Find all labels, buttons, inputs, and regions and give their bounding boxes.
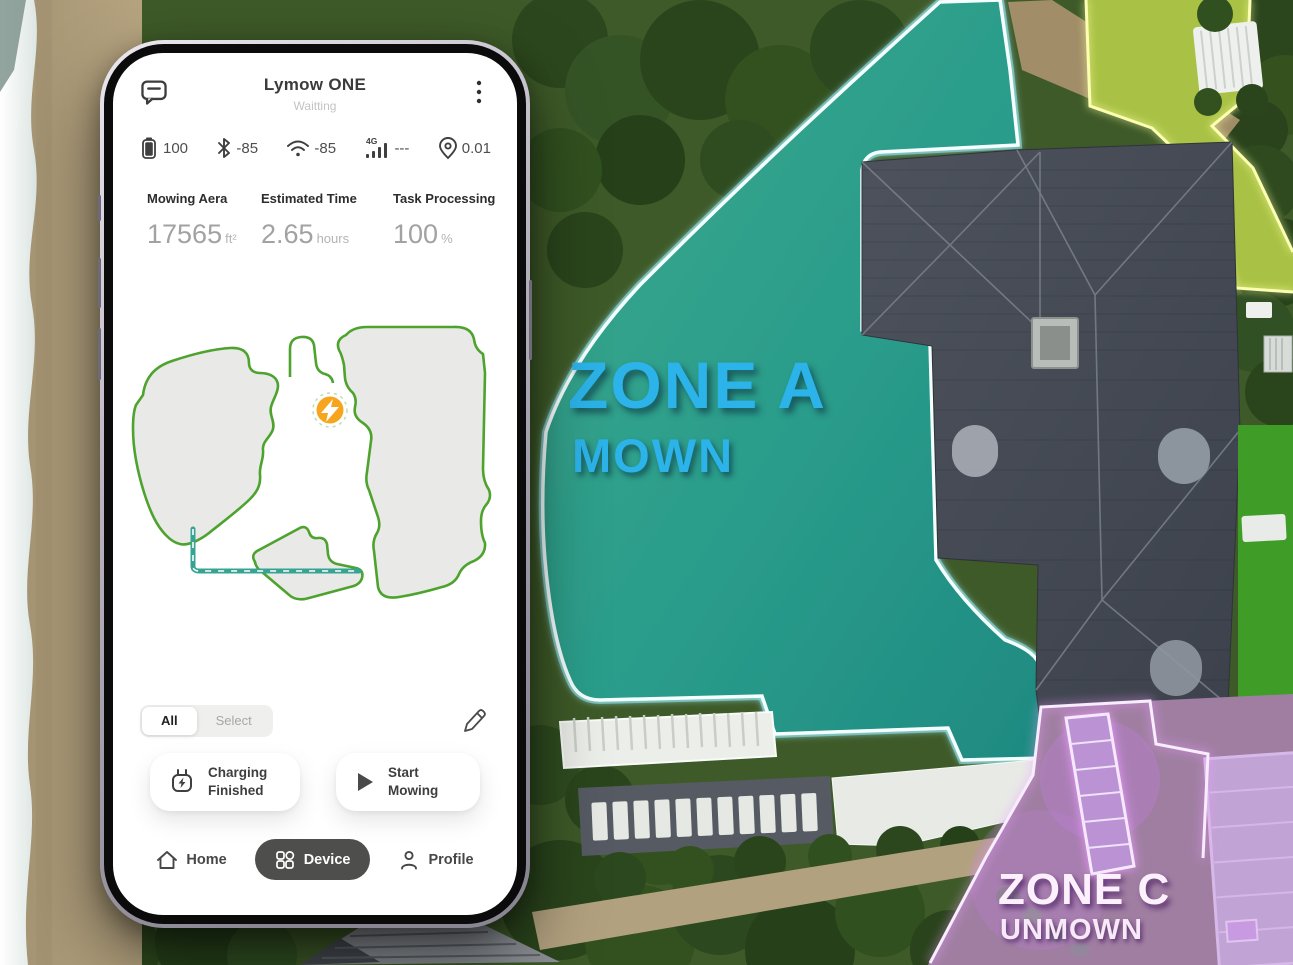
stat-value: 2.65 [261, 219, 314, 249]
person-icon [398, 849, 420, 871]
zone-a-label: ZONE A [568, 352, 827, 418]
volume-down-button [98, 328, 101, 380]
nav-home-label: Home [186, 852, 226, 868]
start-mowing-label: Start Mowing [388, 764, 462, 799]
map-zone-notch [290, 337, 333, 383]
mowing-stats: Mowing Aera 17565ft² Estimated Time 2.65… [147, 191, 503, 250]
status-bluetooth: -85 [216, 137, 258, 159]
edit-map-button[interactable] [460, 706, 490, 736]
power-button [529, 280, 532, 360]
charger-icon [168, 767, 196, 797]
stat-unit: hours [317, 231, 350, 246]
pencil-icon [460, 706, 488, 734]
phone-screen: Lymow ONE Waitting [113, 53, 517, 915]
phone-device: Lymow ONE Waitting [100, 40, 530, 928]
play-icon [354, 770, 376, 794]
stat-estimated-time: Estimated Time 2.65hours [261, 191, 393, 250]
map-zone-bottom[interactable] [253, 527, 362, 599]
retaining-wall [578, 776, 834, 856]
tab-select[interactable]: Select [197, 707, 271, 735]
drain-grate [1264, 336, 1292, 372]
page-title: Lymow ONE [113, 75, 517, 95]
action-button [98, 195, 101, 221]
status-wifi: -85 [286, 138, 336, 158]
charging-finished-label: Charging Finished [208, 764, 282, 799]
stat-label: Task Processing [393, 191, 495, 206]
nav-device[interactable]: Device [255, 839, 371, 880]
ocean-surf [0, 0, 37, 965]
nav-home[interactable]: Home [156, 849, 226, 871]
status-cellular: 4G --- [364, 135, 409, 161]
map-toolbar: All Select [140, 705, 490, 737]
zone-c-status: UNMOWN [1000, 916, 1143, 945]
charging-station-icon[interactable] [311, 391, 349, 429]
start-mowing-button[interactable]: Start Mowing [336, 753, 480, 811]
device-status: Waitting [113, 99, 517, 113]
battery-value: 100 [163, 140, 188, 157]
stat-value: 17565 [147, 219, 222, 249]
map-zone-left[interactable] [133, 348, 278, 544]
device-status-bar: 100 -85 -85 [113, 135, 517, 161]
home-icon [156, 849, 178, 871]
kebab-icon [476, 79, 482, 105]
wifi-icon [286, 138, 310, 158]
stat-value: 100 [393, 219, 438, 249]
mow-map[interactable] [113, 323, 517, 663]
device-grid-icon [275, 850, 295, 870]
charging-finished-button[interactable]: Charging Finished [150, 753, 300, 811]
battery-icon [139, 136, 159, 160]
status-battery: 100 [139, 136, 188, 160]
phone-bezel: Lymow ONE Waitting [104, 44, 526, 924]
stat-label: Mowing Aera [147, 191, 261, 206]
action-buttons: Charging Finished Start Mowing [113, 753, 517, 811]
aerial-photo-background: ZONE A MOWN ZONE C UNMOWN Lymow ONE Wait… [0, 0, 1293, 965]
svg-text:4G: 4G [366, 136, 378, 146]
map-filter-segment: All Select [140, 705, 273, 737]
nav-profile[interactable]: Profile [398, 849, 473, 871]
zone-c-label: ZONE C [998, 868, 1170, 912]
zone-a-status: MOWN [572, 432, 734, 479]
bluetooth-value: -85 [236, 140, 258, 157]
more-menu-button[interactable] [469, 77, 489, 107]
map-zone-right[interactable] [338, 327, 490, 598]
gps-value: 0.01 [462, 140, 491, 157]
side-lawn [1238, 425, 1293, 735]
bottom-navigation: Home Device [113, 839, 517, 880]
location-pin-icon [438, 136, 458, 160]
stat-unit: % [441, 231, 453, 246]
status-gps: 0.01 [438, 136, 491, 160]
volume-up-button [98, 258, 101, 308]
bluetooth-icon [216, 137, 232, 159]
tab-all[interactable]: All [142, 707, 197, 735]
nav-device-label: Device [304, 852, 351, 868]
stat-mowing-area: Mowing Aera 17565ft² [147, 191, 261, 250]
cellular-value: --- [394, 140, 409, 157]
stat-unit: ft² [225, 231, 237, 246]
cellular-signal-icon: 4G [364, 135, 390, 161]
stat-label: Estimated Time [261, 191, 393, 206]
stat-task-processing: Task Processing 100% [393, 191, 495, 250]
wifi-value: -85 [314, 140, 336, 157]
nav-profile-label: Profile [428, 852, 473, 868]
